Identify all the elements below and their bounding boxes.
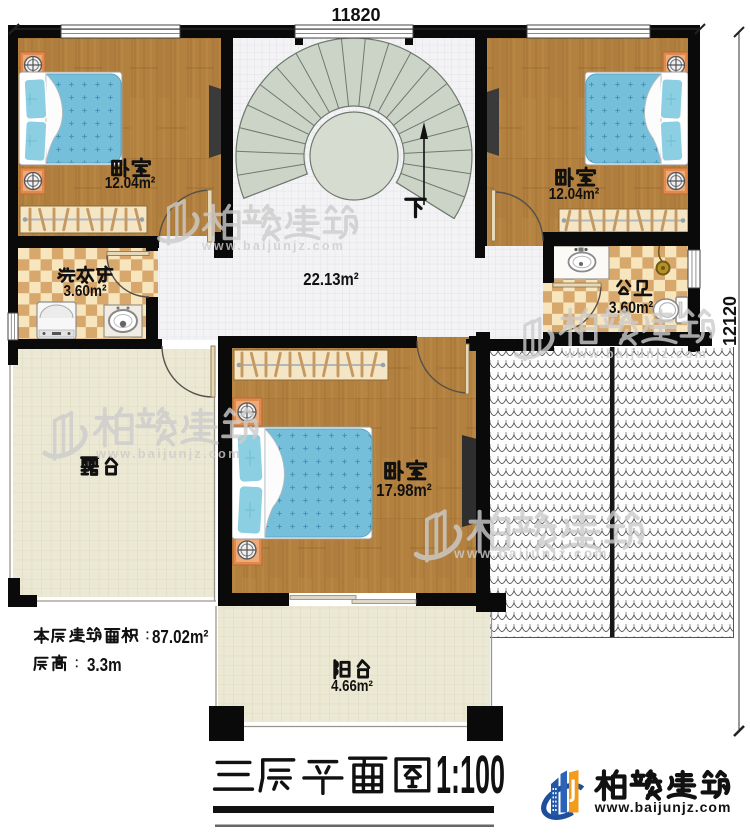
svg-text:www.baijunjz.com: www.baijunjz.com [453,546,609,561]
svg-text:www.baijunjz.com: www.baijunjz.com [201,239,345,253]
svg-text:www.baijunjz.com: www.baijunjz.com [594,799,732,815]
svg-text:17.98m²: 17.98m² [376,481,432,500]
svg-text:3.3m: 3.3m [87,655,122,676]
svg-text:12.04m²: 12.04m² [549,186,600,203]
svg-text:12.04m²: 12.04m² [105,175,156,192]
svg-text:www.baijunjz.com: www.baijunjz.com [95,446,242,461]
svg-text:11820: 11820 [331,5,380,25]
svg-text:www.baijunjz.com: www.baijunjz.com [564,347,708,361]
svg-text:3.60m²: 3.60m² [63,283,106,300]
svg-text:4.66m²: 4.66m² [331,678,373,695]
svg-text:12120: 12120 [720,296,740,346]
svg-text:87.02m²: 87.02m² [152,627,209,648]
svg-text:1:100: 1:100 [436,745,505,806]
svg-text:22.13m²: 22.13m² [303,270,359,289]
